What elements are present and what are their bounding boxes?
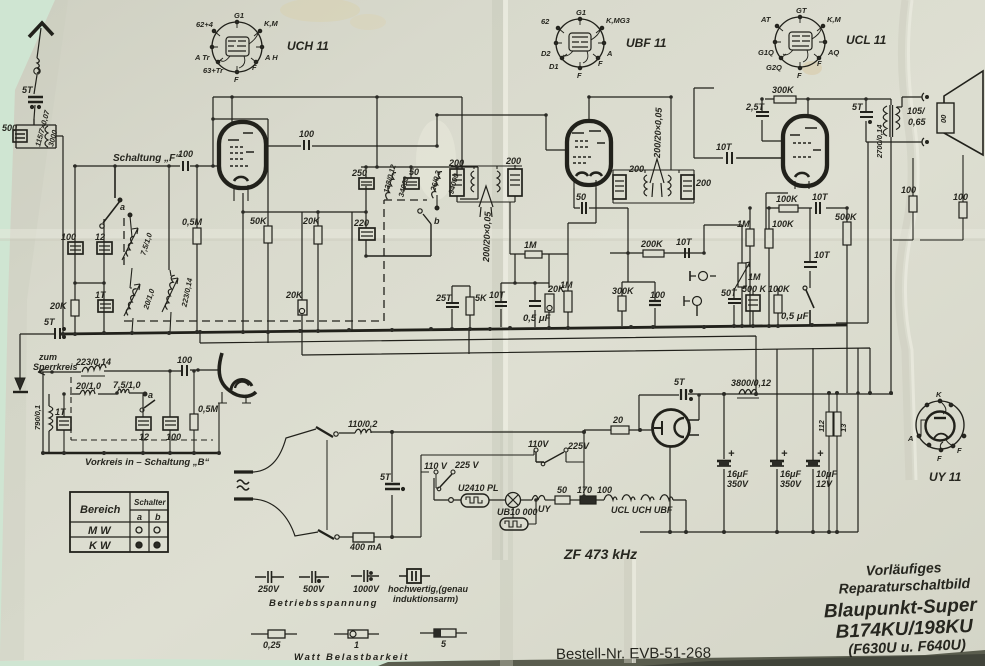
svg-text:200/20×0,05: 200/20×0,05 xyxy=(481,210,493,263)
svg-text:U2410 PL: U2410 PL xyxy=(458,483,499,493)
svg-text:100K: 100K xyxy=(776,194,799,204)
svg-text:Bestell-Nr. EVB-51-268: Bestell-Nr. EVB-51-268 xyxy=(556,645,711,663)
svg-text:500: 500 xyxy=(2,123,17,133)
svg-text:UY: UY xyxy=(538,504,551,514)
svg-text:00: 00 xyxy=(939,114,948,123)
svg-text:5T: 5T xyxy=(44,317,56,327)
svg-text:K W: K W xyxy=(89,540,112,552)
svg-text:b: b xyxy=(155,512,161,522)
svg-text:ZF 473 kHz: ZF 473 kHz xyxy=(563,546,637,562)
svg-text:1T: 1T xyxy=(95,290,107,300)
svg-text:50T: 50T xyxy=(721,288,738,298)
svg-text:100: 100 xyxy=(299,129,314,139)
svg-text:10μF: 10μF xyxy=(816,469,837,479)
svg-text:2,5T: 2,5T xyxy=(745,102,766,112)
svg-text:Watt Belastbarkeit: Watt Belastbarkeit xyxy=(294,652,409,663)
svg-text:UY 11: UY 11 xyxy=(929,470,962,484)
svg-text:K: K xyxy=(936,390,942,399)
svg-text:A: A xyxy=(907,434,913,443)
svg-text:10T: 10T xyxy=(676,237,693,247)
svg-text:112: 112 xyxy=(817,419,826,432)
svg-text:100: 100 xyxy=(61,232,76,242)
svg-text:50: 50 xyxy=(557,485,567,495)
svg-text:M W: M W xyxy=(88,525,112,537)
svg-text:100K: 100K xyxy=(768,284,791,294)
svg-text:10T: 10T xyxy=(814,250,831,260)
svg-text:170: 170 xyxy=(577,485,592,495)
svg-text:K,MG3: K,MG3 xyxy=(606,16,631,25)
svg-text:500 K: 500 K xyxy=(742,284,768,294)
svg-text:110 V: 110 V xyxy=(424,461,448,471)
svg-text:0,25: 0,25 xyxy=(263,640,282,650)
svg-text:20: 20 xyxy=(612,415,623,425)
svg-text:+: + xyxy=(817,448,824,460)
svg-text:A H: A H xyxy=(264,53,278,62)
svg-text:0,5 μF: 0,5 μF xyxy=(781,311,809,322)
svg-text:16μF: 16μF xyxy=(727,469,748,479)
svg-text:250V: 250V xyxy=(257,584,280,594)
svg-text:3800/0,12: 3800/0,12 xyxy=(731,378,771,388)
svg-text:500K: 500K xyxy=(835,212,858,222)
svg-text:F: F xyxy=(577,71,582,80)
svg-text:225 V: 225 V xyxy=(454,460,480,470)
svg-text:300K: 300K xyxy=(612,286,635,296)
svg-text:a: a xyxy=(120,202,125,212)
svg-text:5T: 5T xyxy=(380,472,392,482)
svg-text:F: F xyxy=(937,454,942,463)
svg-text:1T: 1T xyxy=(55,407,67,417)
svg-text:62: 62 xyxy=(541,17,550,26)
svg-text:13: 13 xyxy=(839,423,848,432)
svg-text:Vorkreis in – Schaltung „B“: Vorkreis in – Schaltung „B“ xyxy=(85,457,209,468)
svg-text:UBF 11: UBF 11 xyxy=(626,36,667,50)
svg-text:10T: 10T xyxy=(489,290,506,300)
svg-text:223/0,14: 223/0,14 xyxy=(75,357,111,367)
svg-text:A Tr: A Tr xyxy=(194,53,211,62)
svg-text:100: 100 xyxy=(178,149,193,159)
svg-text:Sperrkreis: Sperrkreis xyxy=(33,362,78,372)
svg-text:+: + xyxy=(728,448,735,460)
svg-text:G1: G1 xyxy=(576,8,586,17)
svg-text:K,M: K,M xyxy=(827,15,842,24)
svg-text:b: b xyxy=(434,216,440,226)
svg-text:F: F xyxy=(797,71,802,80)
svg-text:200K: 200K xyxy=(640,239,664,249)
svg-text:F: F xyxy=(598,59,603,68)
svg-text:20K: 20K xyxy=(285,290,304,300)
svg-text:20K: 20K xyxy=(302,216,321,226)
svg-text:G2Q: G2Q xyxy=(766,63,782,72)
svg-text:300K: 300K xyxy=(772,85,795,95)
svg-text:F: F xyxy=(234,75,239,84)
svg-text:220: 220 xyxy=(353,218,369,228)
svg-text:A: A xyxy=(606,49,612,58)
svg-text:D2: D2 xyxy=(541,49,551,58)
svg-text:1M: 1M xyxy=(524,240,537,250)
svg-text:200: 200 xyxy=(695,178,711,188)
svg-text:D1: D1 xyxy=(549,62,559,71)
svg-text:10T: 10T xyxy=(812,192,829,202)
svg-text:Betriebsspannung: Betriebsspannung xyxy=(269,598,378,609)
svg-text:10T: 10T xyxy=(716,142,733,152)
svg-text:zum: zum xyxy=(38,352,57,362)
svg-text:5T: 5T xyxy=(22,85,34,95)
svg-text:12V: 12V xyxy=(816,479,833,489)
svg-text:1000V: 1000V xyxy=(353,584,380,594)
svg-text:F: F xyxy=(252,63,257,72)
svg-text:K,M: K,M xyxy=(264,19,279,28)
svg-text:50K: 50K xyxy=(250,216,268,226)
svg-text:1M: 1M xyxy=(737,219,750,229)
svg-text:1: 1 xyxy=(354,640,359,650)
svg-text:G1: G1 xyxy=(234,11,244,20)
svg-text:Vorläufiges: Vorläufiges xyxy=(865,559,942,578)
svg-text:AQ: AQ xyxy=(827,48,839,57)
svg-text:20K: 20K xyxy=(49,301,68,311)
svg-text:100: 100 xyxy=(597,485,612,495)
svg-text:+: + xyxy=(781,448,788,460)
svg-text:hochwertig,(genau: hochwertig,(genau xyxy=(388,584,469,594)
svg-text:Schalter: Schalter xyxy=(134,498,166,507)
svg-text:Schaltung „F“: Schaltung „F“ xyxy=(113,153,180,164)
svg-text:0,5M: 0,5M xyxy=(182,217,203,227)
svg-text:UCL 11: UCL 11 xyxy=(846,33,887,47)
svg-text:1M: 1M xyxy=(560,280,573,290)
svg-text:F: F xyxy=(817,59,822,68)
svg-text:63+Tr: 63+Tr xyxy=(203,66,224,75)
svg-text:350V: 350V xyxy=(727,479,749,489)
svg-text:200/20×0,05: 200/20×0,05 xyxy=(652,106,664,159)
svg-text:100: 100 xyxy=(901,185,916,195)
svg-text:a: a xyxy=(137,512,142,522)
svg-text:100: 100 xyxy=(953,192,968,202)
svg-text:5T: 5T xyxy=(674,377,686,387)
svg-text:100K: 100K xyxy=(772,219,795,229)
svg-text:5T: 5T xyxy=(852,102,864,112)
svg-text:500V: 500V xyxy=(303,584,325,594)
svg-text:110/0,2: 110/0,2 xyxy=(348,419,377,429)
svg-text:100: 100 xyxy=(177,355,192,365)
svg-text:GT: GT xyxy=(796,6,808,15)
svg-text:400 mA: 400 mA xyxy=(349,542,382,552)
svg-text:16μF: 16μF xyxy=(780,469,801,479)
svg-text:105/: 105/ xyxy=(907,106,926,116)
svg-text:790/0,1: 790/0,1 xyxy=(33,405,42,430)
svg-text:UCH 11: UCH 11 xyxy=(287,39,329,53)
svg-text:G1Q: G1Q xyxy=(758,48,774,57)
svg-text:F: F xyxy=(957,446,962,455)
svg-text:0,5M: 0,5M xyxy=(198,404,219,414)
svg-text:20/1,0: 20/1,0 xyxy=(75,381,101,391)
svg-text:Bereich: Bereich xyxy=(80,504,121,516)
svg-text:250: 250 xyxy=(351,168,367,178)
svg-text:0,65: 0,65 xyxy=(908,117,927,127)
svg-text:UB10 000: UB10 000 xyxy=(497,507,538,517)
svg-text:200: 200 xyxy=(628,164,644,174)
svg-text:5K: 5K xyxy=(475,293,488,303)
svg-text:7,5/1,0: 7,5/1,0 xyxy=(113,380,141,390)
svg-text:62+4: 62+4 xyxy=(196,20,214,29)
svg-text:AT: AT xyxy=(760,15,772,24)
svg-text:225V: 225V xyxy=(567,441,590,451)
svg-text:UCL UCH UBF: UCL UCH UBF xyxy=(611,505,673,515)
svg-text:12: 12 xyxy=(95,232,105,242)
svg-text:200: 200 xyxy=(505,156,521,166)
svg-text:0,5 μF: 0,5 μF xyxy=(523,313,551,324)
svg-text:350V: 350V xyxy=(780,479,802,489)
svg-text:induktionsarm): induktionsarm) xyxy=(393,594,458,604)
svg-text:25T: 25T xyxy=(435,293,453,303)
svg-text:110V: 110V xyxy=(528,439,549,449)
svg-text:50: 50 xyxy=(576,192,586,202)
svg-text:a: a xyxy=(148,390,153,400)
svg-text:100: 100 xyxy=(650,290,665,300)
